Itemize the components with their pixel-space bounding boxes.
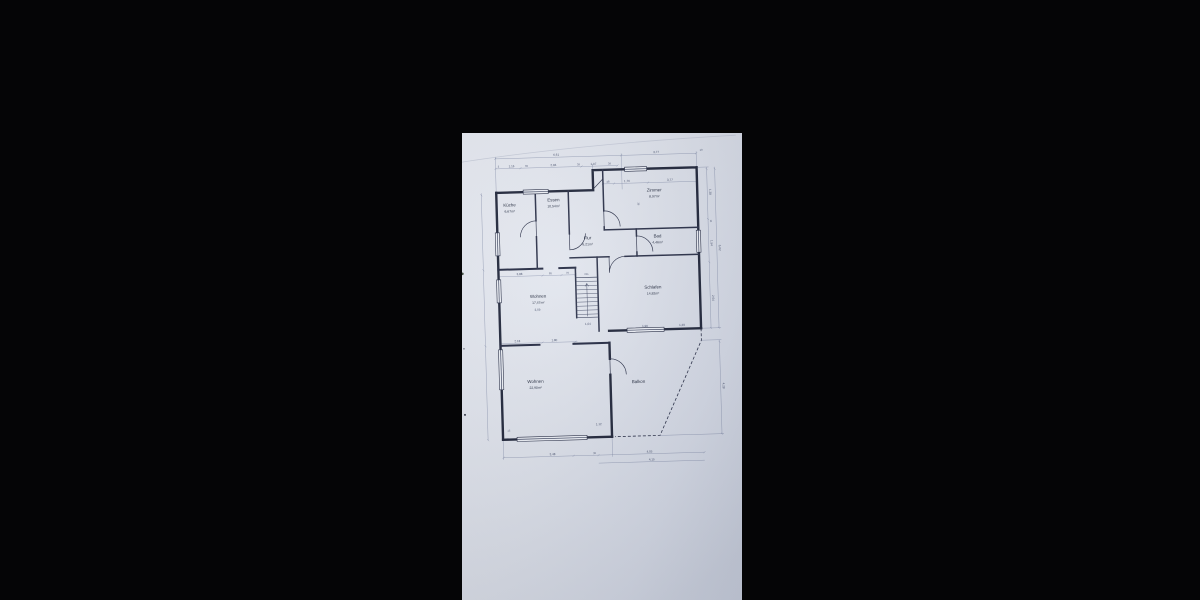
svg-text:Küche: Küche	[503, 202, 516, 207]
window-symbol-kueche-left	[495, 233, 500, 256]
window-symbol-bad-right	[696, 230, 701, 252]
room-kueche: Küche 6,67m²	[503, 202, 516, 213]
dim-label: 11	[709, 219, 713, 222]
dim-label: 3,77	[667, 178, 673, 182]
dim-label: 1,16	[508, 164, 514, 168]
staircase: OG	[575, 272, 598, 318]
stairs-label: OG	[584, 272, 588, 276]
dim-label: 1,38	[708, 189, 712, 195]
dim-label: 3,48	[550, 452, 556, 456]
dim-label: 10	[700, 148, 704, 152]
window-symbol-wohnen2-bottom	[517, 435, 587, 441]
room-essen: Essen 10,54m²	[547, 197, 561, 208]
floorplan-drawing: 6,61 3,77 10 3 1,16 39 2,84 39 1,07 39 4…	[462, 133, 742, 600]
svg-text:Schlafen: Schlafen	[644, 284, 662, 289]
dim-label: 76	[566, 271, 570, 275]
paper-specks	[462, 273, 468, 416]
dim-label: 2,84	[550, 163, 556, 167]
window-symbol-balkon-door	[627, 327, 664, 332]
window-symbol-wohnen2-left	[498, 350, 503, 390]
door-arc-balkon	[610, 358, 626, 374]
dim-label: 39	[608, 161, 612, 165]
dim-label: 36	[637, 202, 641, 206]
svg-text:Bad: Bad	[653, 233, 662, 238]
svg-text:8,97m²: 8,97m²	[649, 194, 661, 198]
dim-label: 1,54	[710, 240, 714, 246]
svg-text:Essen: Essen	[547, 197, 560, 202]
room-balkon: Balkon	[632, 379, 646, 384]
room-wohnen-1: Wohnen 17,47m²	[530, 294, 547, 305]
dim-label: 2,18	[514, 339, 520, 343]
dim-label: 3,77	[653, 150, 659, 154]
dim-label: 1,04	[585, 322, 591, 326]
door-arc-zimmer	[604, 210, 620, 226]
dim-label: 1,76	[624, 179, 630, 183]
svg-text:Zimmer: Zimmer	[647, 187, 663, 192]
dim-label: 4,28	[722, 383, 726, 389]
window-symbol-wohnen-left	[497, 280, 502, 303]
room-schlafen: Schlafen 14,82m²	[644, 284, 662, 295]
dim-label: 1,12	[596, 422, 602, 426]
exterior-walls	[496, 167, 704, 440]
svg-text:Wohnen: Wohnen	[530, 294, 547, 299]
door-arc-kueche	[520, 221, 536, 237]
dim-label: 1,80	[551, 338, 557, 342]
dim-label: 85	[549, 271, 553, 275]
dim-label: 2,64	[711, 295, 715, 301]
floorplan-photo: 6,61 3,77 10 3 1,16 39 2,84 39 1,07 39 4…	[462, 133, 742, 600]
svg-text:10,54m²: 10,54m²	[547, 204, 560, 208]
load-bearing-walls	[498, 267, 609, 346]
window-symbol-essen-top	[523, 189, 548, 194]
svg-text:Wohnen: Wohnen	[527, 379, 544, 384]
svg-text:6,67m²: 6,67m²	[504, 209, 516, 213]
svg-text:Flur: Flur	[584, 235, 592, 240]
door-arc-bad	[636, 236, 652, 252]
dim-label: 6,61	[553, 153, 559, 157]
balcony-outline	[612, 328, 704, 436]
dim-label: 39	[593, 451, 597, 455]
dim-label: 1,29	[679, 323, 685, 327]
dim-label: 39	[577, 162, 581, 166]
dim-label: 3,59	[535, 308, 541, 312]
window-symbol-zimmer-top	[625, 167, 647, 172]
door-leaf-entrance	[594, 179, 603, 188]
room-labels: Küche 6,67m² Essen 10,54m² Zimmer 8,97m²…	[503, 187, 668, 390]
dim-label: 48	[606, 180, 610, 184]
svg-text:22,90m²: 22,90m²	[529, 386, 542, 390]
door-arc-schlafen	[609, 256, 625, 272]
windows	[493, 165, 706, 442]
svg-text:4,46m²: 4,46m²	[652, 240, 664, 244]
screenshot-stage: 6,61 3,77 10 3 1,16 39 2,84 39 1,07 39 4…	[0, 0, 1200, 600]
svg-text:17,47m²: 17,47m²	[532, 301, 545, 305]
dim-label: 15	[507, 429, 511, 433]
dimension-lines	[479, 151, 725, 466]
svg-text:Balkon: Balkon	[632, 379, 646, 384]
svg-text:14,82m²: 14,82m²	[647, 291, 660, 295]
dim-label: 39	[525, 164, 529, 168]
room-bad: Bad 4,46m²	[652, 233, 664, 244]
dim-label: 6,02	[718, 245, 722, 251]
dim-label: 1,07	[590, 162, 596, 166]
dim-label: 4,05	[647, 449, 653, 453]
svg-text:6,21m²: 6,21m²	[582, 242, 594, 246]
dim-label: 3,88	[517, 272, 523, 276]
room-wohnen-2: Wohnen 22,90m²	[527, 379, 544, 390]
dim-label: 4,15	[649, 457, 655, 461]
room-zimmer: Zimmer 8,97m²	[647, 187, 663, 198]
dim-label: 3	[498, 165, 500, 169]
